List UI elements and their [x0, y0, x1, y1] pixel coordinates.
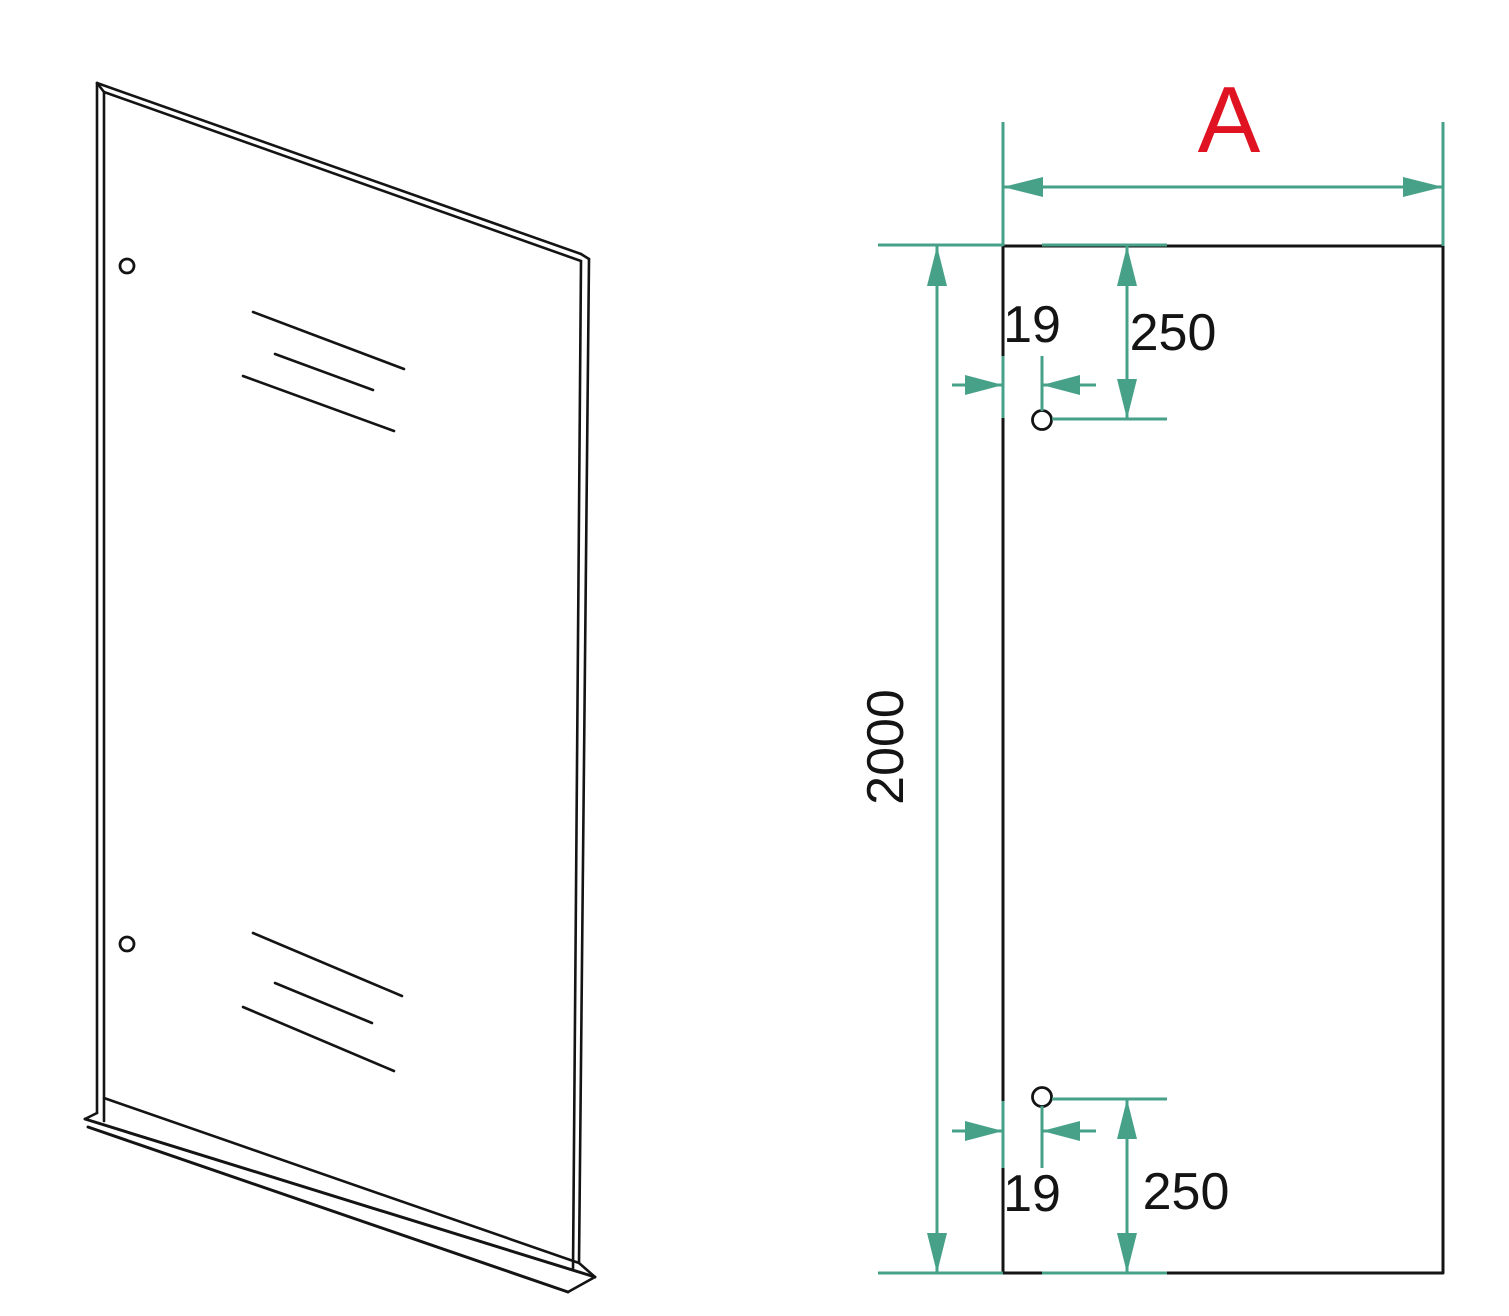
- height-dim-label: 2000: [860, 689, 912, 805]
- front-top-hole: [1033, 411, 1052, 430]
- arrowhead-up-icon: [1117, 1099, 1137, 1139]
- technical-drawing-canvas: A 2000 19 250 19 250: [0, 0, 1509, 1316]
- width-dim-label: A: [1198, 73, 1261, 167]
- drawing-svg: [0, 0, 1509, 1316]
- arrowhead-right-icon: [965, 1121, 1003, 1141]
- glass-top-right-cap: [581, 254, 589, 259]
- arrowhead-right-icon: [1403, 177, 1443, 197]
- dimension-top-hole-x: [952, 356, 1096, 418]
- reflection-line: [243, 1007, 394, 1071]
- bottom-hole-bottom-offset-label: 250: [1143, 1166, 1230, 1218]
- glass-bottom-edge: [104, 1098, 579, 1263]
- arrowhead-up-icon: [1117, 246, 1137, 286]
- iso-bottom-hole: [120, 937, 134, 951]
- dimension-bottom-hole-x: [952, 1101, 1096, 1168]
- arrowhead-down-icon: [1117, 1233, 1137, 1273]
- iso-top-hole: [120, 259, 134, 273]
- reflection-line: [253, 933, 402, 996]
- arrowhead-down-icon: [927, 1233, 947, 1273]
- arrowhead-down-icon: [1117, 379, 1137, 419]
- top-hole-edge-offset-label: 19: [1003, 299, 1061, 351]
- reflection-line: [243, 376, 394, 431]
- bottom-hole-edge-offset-label: 19: [1003, 1168, 1061, 1220]
- arrowhead-left-icon: [1042, 375, 1080, 395]
- glass-top-outer-edge: [97, 83, 581, 254]
- arrowhead-right-icon: [965, 375, 1003, 395]
- arrowhead-up-icon: [927, 246, 947, 286]
- reflection-line: [275, 983, 372, 1023]
- reflection-line: [275, 354, 373, 390]
- isometric-view: [85, 83, 595, 1292]
- glass-top-inner-edge: [104, 92, 581, 261]
- rail-top-edge: [85, 1119, 595, 1277]
- panel-outline: [1003, 246, 1443, 1273]
- front-bottom-hole: [1033, 1088, 1052, 1107]
- arrowhead-left-icon: [1042, 1121, 1080, 1141]
- reflection-line: [253, 312, 404, 369]
- top-hole-top-offset-label: 250: [1130, 307, 1217, 359]
- arrowhead-left-icon: [1003, 177, 1043, 197]
- front-view: [878, 122, 1443, 1273]
- rail-bottom-edge: [88, 1127, 568, 1292]
